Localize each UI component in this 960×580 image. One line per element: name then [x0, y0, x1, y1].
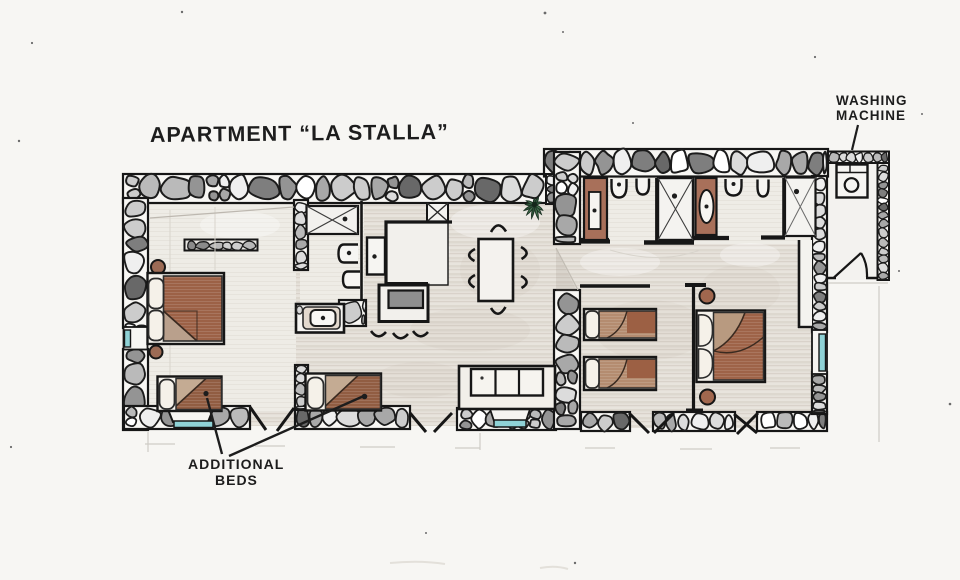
svg-text:MACHINE: MACHINE	[836, 108, 906, 123]
svg-text:APARTMENT “LA STALLA”: APARTMENT “LA STALLA”	[150, 120, 449, 147]
svg-text:ADDITIONAL: ADDITIONAL	[188, 456, 284, 472]
svg-text:BEDS: BEDS	[215, 472, 258, 488]
svg-text:WASHING: WASHING	[836, 93, 908, 108]
